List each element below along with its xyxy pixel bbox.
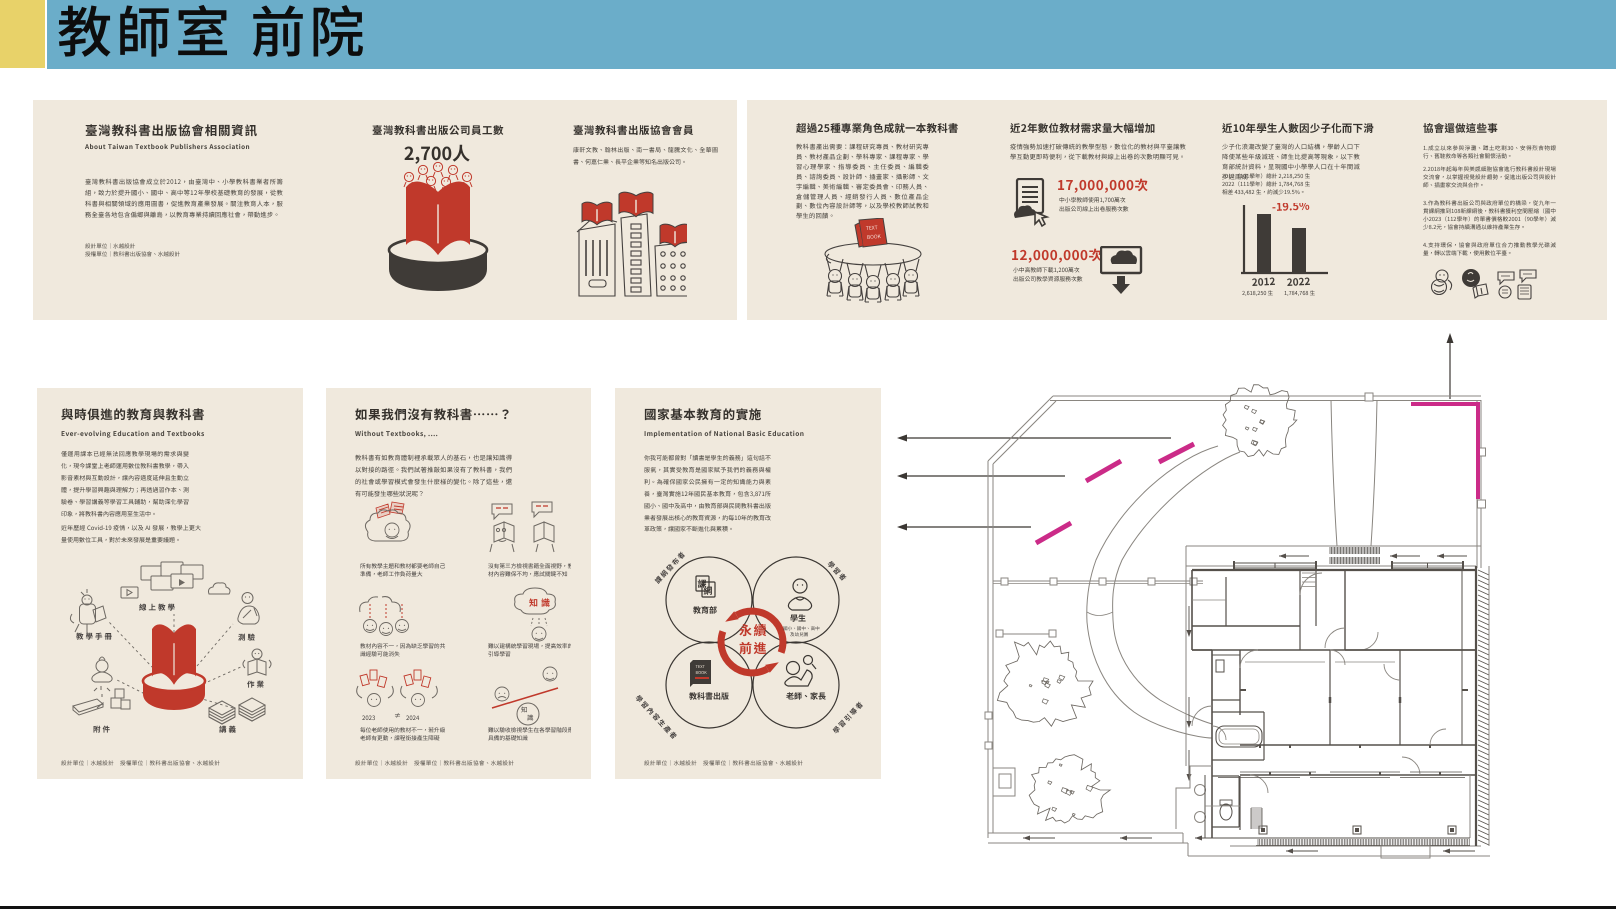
svg-text:BOOK: BOOK <box>867 233 882 241</box>
svg-text:材內容難保不均，應試關鍵不知: 材內容難保不均，應試關鍵不知 <box>488 569 568 578</box>
svg-text:教學手冊: 教學手冊 <box>76 631 114 642</box>
svg-text:學生: 學生 <box>790 613 806 624</box>
svg-text:知識: 知識 <box>529 596 553 609</box>
svg-text:2022: 2022 <box>1286 273 1310 289</box>
svg-text:識經驗可能消失: 識經驗可能消失 <box>360 649 400 658</box>
svg-text:2012: 2012 <box>1251 273 1275 289</box>
svg-text:引導學習: 引導學習 <box>488 649 511 658</box>
svg-text:識: 識 <box>527 712 534 722</box>
svg-text:附件: 附件 <box>93 724 112 735</box>
svg-text:老師、家長: 老師、家長 <box>786 691 826 702</box>
svg-text:及幼兒園: 及幼兒園 <box>790 632 809 638</box>
svg-text:1,784,768 生: 1,784,768 生 <box>1284 289 1316 297</box>
svg-text:教育部: 教育部 <box>693 605 717 616</box>
svg-text:線上教學: 線上教學 <box>139 602 177 613</box>
svg-text:測驗: 測驗 <box>238 632 257 643</box>
svg-text:學習者: 學習者 <box>826 559 850 584</box>
svg-text:學習內容生產者: 學習內容生產者 <box>634 693 681 742</box>
svg-text:學習引導者: 學習引導者 <box>830 698 866 735</box>
svg-text:≠: ≠ <box>394 711 401 721</box>
svg-text:2023: 2023 <box>362 713 375 722</box>
svg-text:準備，老師工作負荷量大: 準備，老師工作負荷量大 <box>360 569 423 578</box>
svg-text:前進: 前進 <box>739 638 768 657</box>
svg-text:講義: 講義 <box>219 724 238 735</box>
svg-text:永續: 永續 <box>739 620 768 639</box>
svg-text:老師有更動，課程銜接產生障礙: 老師有更動，課程銜接產生障礙 <box>360 733 440 742</box>
svg-text:2024: 2024 <box>406 713 420 722</box>
svg-text:TEXT: TEXT <box>866 224 878 232</box>
svg-text:具備的基礎知識: 具備的基礎知識 <box>488 733 528 742</box>
svg-text:作業: 作業 <box>247 679 266 690</box>
svg-text:-19.5%: -19.5% <box>1272 203 1311 215</box>
svg-text:2,618,250 生: 2,618,250 生 <box>1242 289 1274 297</box>
svg-text:教科書出版: 教科書出版 <box>689 691 729 702</box>
svg-text:BOOK: BOOK <box>696 670 708 676</box>
svg-text:綱: 綱 <box>704 584 713 597</box>
